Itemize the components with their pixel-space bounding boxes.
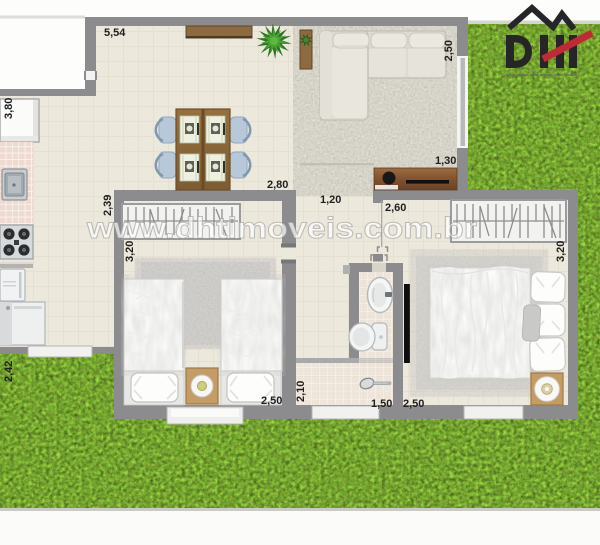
svg-text:2,50: 2,50 (403, 398, 424, 410)
svg-text:1,50: 1,50 (371, 398, 392, 410)
svg-text:2,10: 2,10 (295, 381, 307, 402)
svg-text:1,20: 1,20 (320, 194, 341, 206)
svg-text:3,20: 3,20 (124, 241, 136, 262)
svg-text:5,54: 5,54 (104, 27, 126, 39)
svg-text:3,20: 3,20 (555, 241, 567, 262)
svg-text:3,80: 3,80 (3, 98, 15, 119)
svg-text:2,42: 2,42 (3, 361, 15, 382)
svg-text:2,39: 2,39 (102, 195, 114, 216)
svg-text:2,50: 2,50 (261, 395, 282, 407)
svg-text:www.dhtimoveis.com.br: www.dhtimoveis.com.br (86, 212, 477, 245)
svg-text:2,50: 2,50 (443, 40, 455, 61)
svg-text:2,80: 2,80 (267, 179, 288, 191)
svg-text:1,30: 1,30 (435, 155, 456, 167)
svg-text:2,60: 2,60 (385, 202, 406, 214)
